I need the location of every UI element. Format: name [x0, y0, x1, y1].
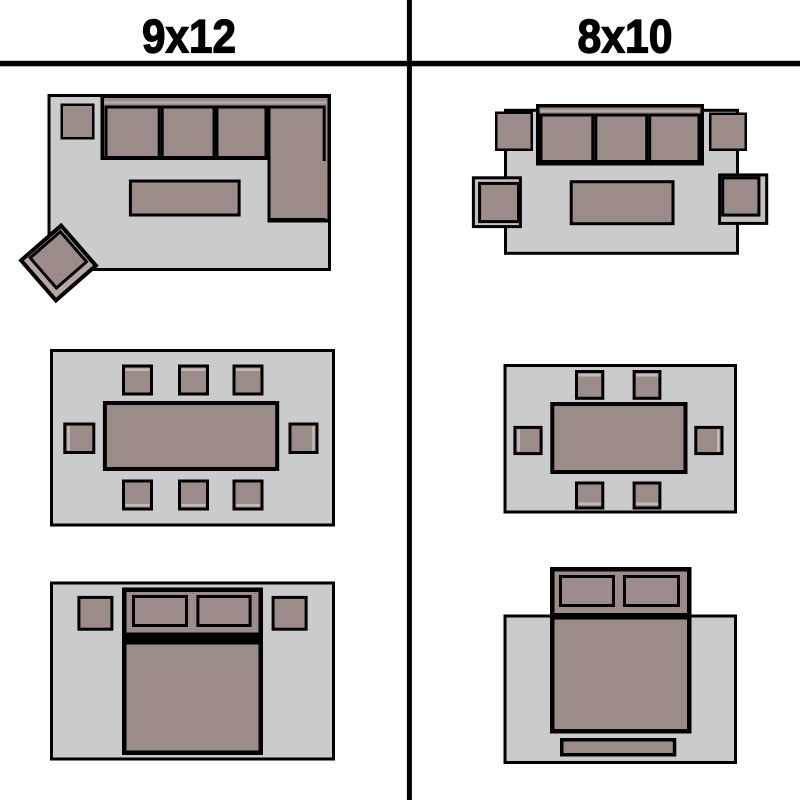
- svg-text:8x10: 8x10: [578, 10, 673, 63]
- svg-text:9x12: 9x12: [142, 10, 236, 63]
